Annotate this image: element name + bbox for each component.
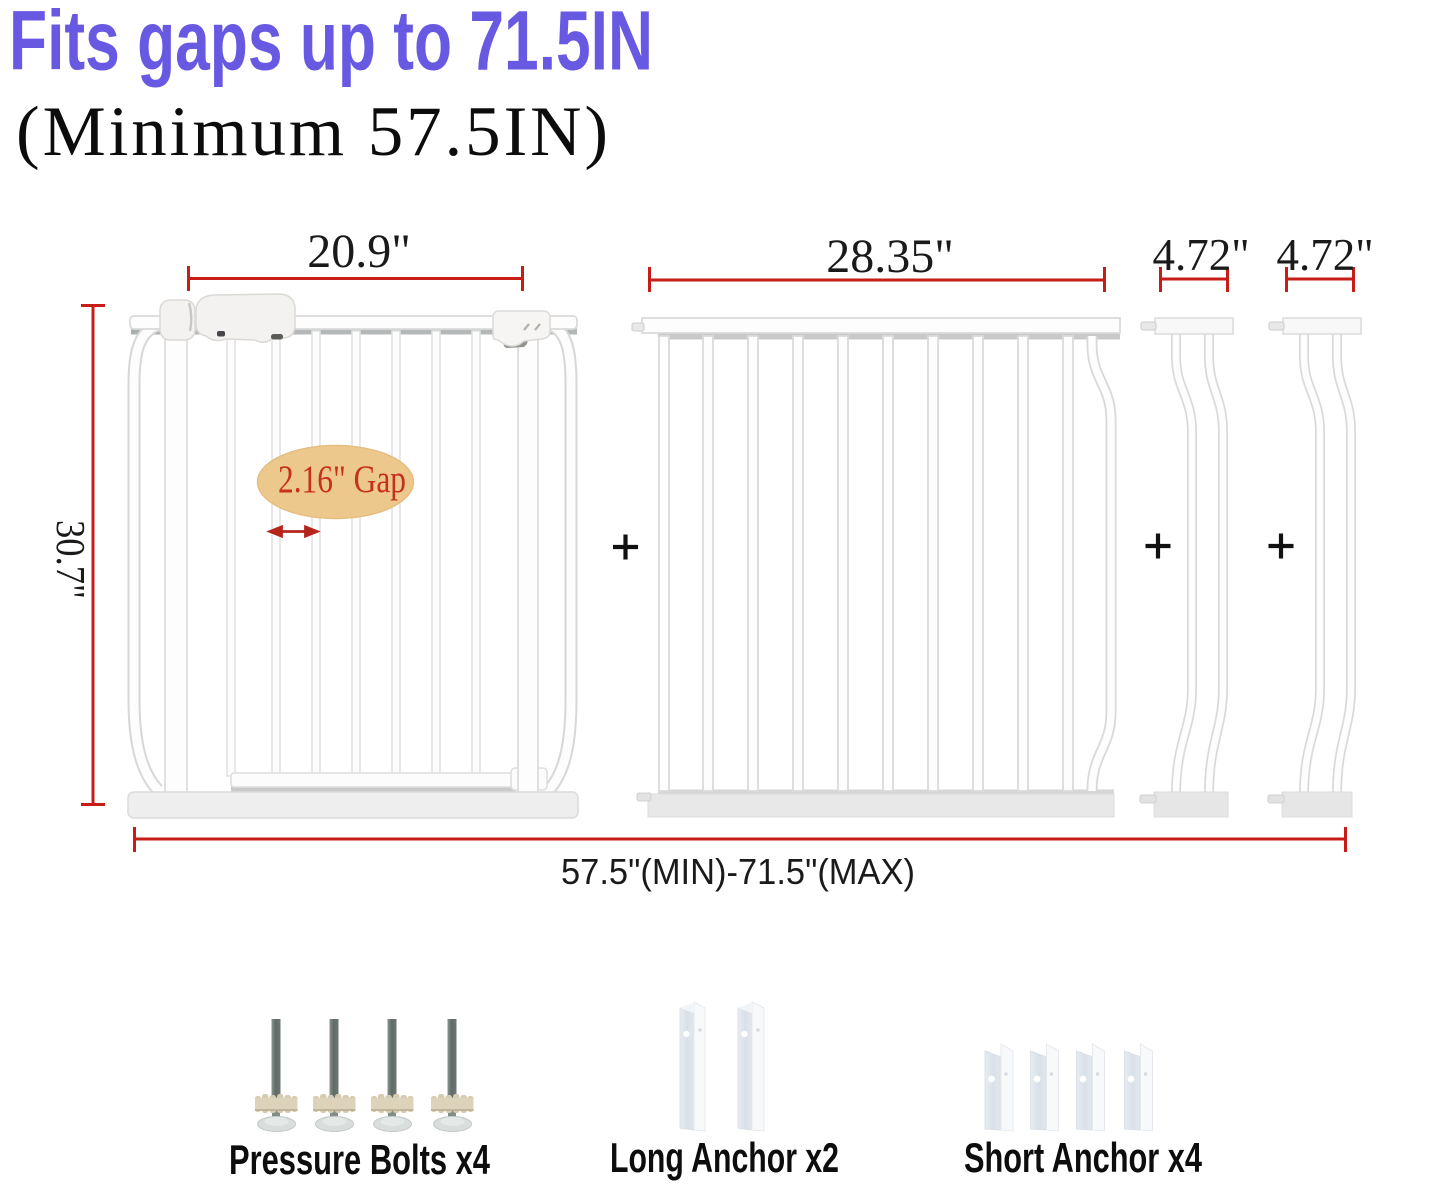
svg-text:30.7": 30.7" <box>48 520 94 599</box>
svg-text:Long Anchor x2: Long Anchor x2 <box>610 1134 839 1181</box>
svg-text:4.72": 4.72" <box>1276 230 1373 280</box>
svg-text:Short Anchor x4: Short Anchor x4 <box>964 1134 1202 1181</box>
svg-text:20.9": 20.9" <box>307 225 411 278</box>
svg-text:Fits gaps up to 71.5IN: Fits gaps up to 71.5IN <box>9 0 653 88</box>
svg-text:(Minimum 57.5IN): (Minimum 57.5IN) <box>16 93 608 171</box>
svg-text:28.35": 28.35" <box>826 230 954 283</box>
svg-text:4.72": 4.72" <box>1152 230 1249 280</box>
svg-text:Pressure Bolts x4: Pressure Bolts x4 <box>229 1136 490 1183</box>
svg-text:2.16" Gap: 2.16" Gap <box>278 458 406 501</box>
svg-text:57.5"(MIN)-71.5"(MAX): 57.5"(MIN)-71.5"(MAX) <box>561 851 915 892</box>
